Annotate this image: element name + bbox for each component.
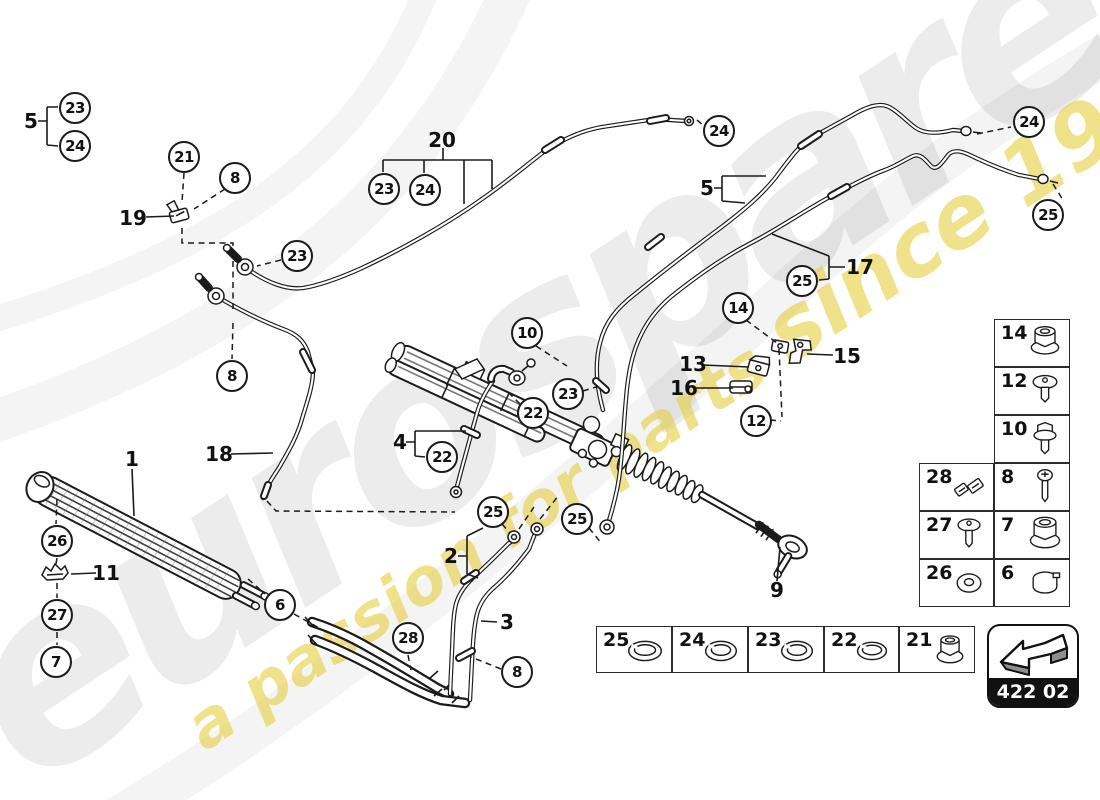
- callout-24-b[interactable]: 24: [409, 174, 441, 206]
- legend-cell-7[interactable]: 7: [994, 511, 1070, 559]
- callout-21[interactable]: 21: [168, 141, 200, 173]
- label-4: 4: [393, 430, 407, 454]
- label-11: 11: [92, 561, 120, 585]
- pan-screw-icon: [1024, 467, 1066, 507]
- callout-14[interactable]: 14: [722, 292, 754, 324]
- clip-bracket-icon: [948, 467, 990, 507]
- callout-24-d[interactable]: 24: [1013, 106, 1045, 138]
- callout-28[interactable]: 28: [392, 622, 424, 654]
- legend-cell-26[interactable]: 26: [919, 559, 994, 607]
- callout-25-a[interactable]: 25: [1032, 199, 1064, 231]
- callout-10[interactable]: 10: [511, 317, 543, 349]
- seal-ring-icon: [774, 630, 820, 670]
- parts-diagram-drawing: eurospares a passion for parts since 198…: [0, 0, 1100, 800]
- label-15: 15: [833, 344, 861, 368]
- callout-8-a[interactable]: 8: [219, 162, 251, 194]
- legend-cell-10[interactable]: 10: [994, 415, 1070, 463]
- callout-24-c[interactable]: 24: [703, 115, 735, 147]
- legend-cell-14[interactable]: 14: [994, 319, 1070, 367]
- clamp-ring-icon: [1024, 563, 1066, 603]
- callout-25-c[interactable]: 25: [477, 496, 509, 528]
- legend-cell-6[interactable]: 6: [994, 559, 1070, 607]
- parts-diagram-page: eurospares a passion for parts since 198…: [0, 0, 1100, 800]
- section-code: 422 02: [989, 678, 1077, 706]
- flange-nut-icon: [1024, 323, 1066, 363]
- label-2: 2: [444, 544, 458, 568]
- flanged-bolt-icon: [1024, 419, 1066, 459]
- strip-cell-22[interactable]: 22: [824, 626, 899, 673]
- legend-cell-27[interactable]: 27: [919, 511, 994, 559]
- seal-ring-icon: [698, 630, 744, 670]
- clip-19: [166, 198, 189, 223]
- clamp-16: [730, 381, 752, 393]
- legend-cell-28[interactable]: 28: [919, 463, 994, 511]
- watermark-brand: eurospares: [0, 0, 1100, 800]
- callout-26[interactable]: 26: [41, 525, 73, 557]
- washer-icon: [948, 563, 990, 603]
- callout-8-c[interactable]: 8: [501, 656, 533, 688]
- strip-cell-25[interactable]: 25: [596, 626, 672, 673]
- flange-nut-icon: [929, 630, 971, 670]
- strip-cell-24[interactable]: 24: [672, 626, 748, 673]
- tie-rod: [684, 494, 811, 585]
- callout-7[interactable]: 7: [40, 646, 72, 678]
- strip-cell-21[interactable]: 21: [899, 626, 975, 673]
- callout-23-a[interactable]: 23: [59, 92, 91, 124]
- section-badge[interactable]: 422 02: [987, 624, 1079, 708]
- label-18: 18: [205, 442, 233, 466]
- label-13: 13: [679, 352, 707, 376]
- seal-ring-icon: [622, 630, 668, 670]
- callout-25-b[interactable]: 25: [786, 265, 818, 297]
- callout-22-b[interactable]: 22: [426, 441, 458, 473]
- callout-24-a[interactable]: 24: [59, 130, 91, 162]
- clip-11: [42, 564, 68, 580]
- clip-14-bracket: [771, 340, 789, 354]
- callout-23-c[interactable]: 23: [368, 173, 400, 205]
- flange-nut-icon: [1024, 515, 1066, 555]
- callout-8-b[interactable]: 8: [216, 360, 248, 392]
- label-9: 9: [770, 578, 784, 602]
- callout-27[interactable]: 27: [41, 599, 73, 631]
- label-1: 1: [125, 447, 139, 471]
- legend-cell-12[interactable]: 12: [994, 367, 1070, 415]
- dome-screw-icon: [1024, 371, 1066, 411]
- label-16: 16: [670, 376, 698, 400]
- callout-12[interactable]: 12: [740, 405, 772, 437]
- label-3: 3: [500, 610, 514, 634]
- label-17: 17: [846, 255, 874, 279]
- callout-25-d[interactable]: 25: [561, 503, 593, 535]
- legend-cell-8[interactable]: 8: [994, 463, 1070, 511]
- callout-6[interactable]: 6: [264, 589, 296, 621]
- label-5-right: 5: [700, 176, 714, 200]
- direction-arrow-icon: [989, 628, 1077, 680]
- label-5-left: 5: [24, 109, 38, 133]
- callout-23-d[interactable]: 23: [552, 378, 584, 410]
- strip-cell-23[interactable]: 23: [748, 626, 824, 673]
- label-19: 19: [119, 206, 147, 230]
- label-20: 20: [428, 128, 456, 152]
- seal-ring-icon: [849, 630, 895, 670]
- callout-23-b[interactable]: 23: [281, 240, 313, 272]
- dome-screw-icon: [948, 515, 990, 555]
- callout-22-a[interactable]: 22: [517, 397, 549, 429]
